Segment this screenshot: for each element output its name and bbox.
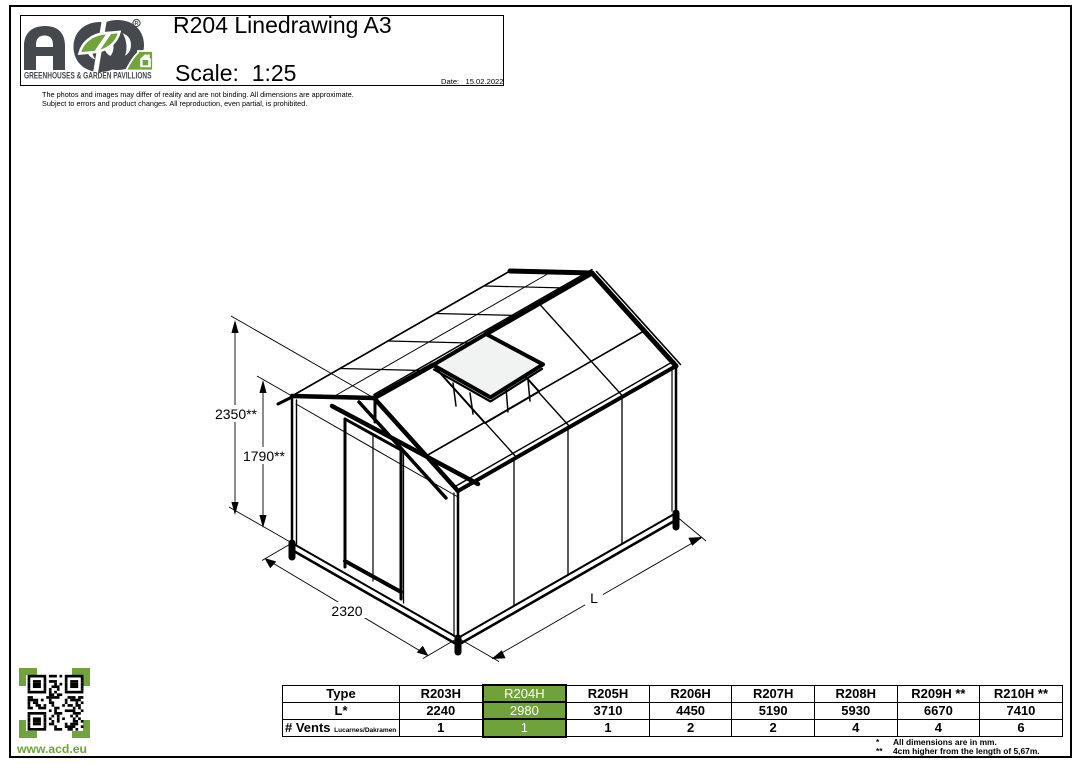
svg-text:2350**: 2350** <box>215 406 258 422</box>
svg-text:1790**: 1790** <box>243 448 286 464</box>
svg-text:2320: 2320 <box>331 603 362 619</box>
svg-text:L: L <box>590 590 598 606</box>
svg-text:www.acd.eu: www.acd.eu <box>16 742 87 756</box>
